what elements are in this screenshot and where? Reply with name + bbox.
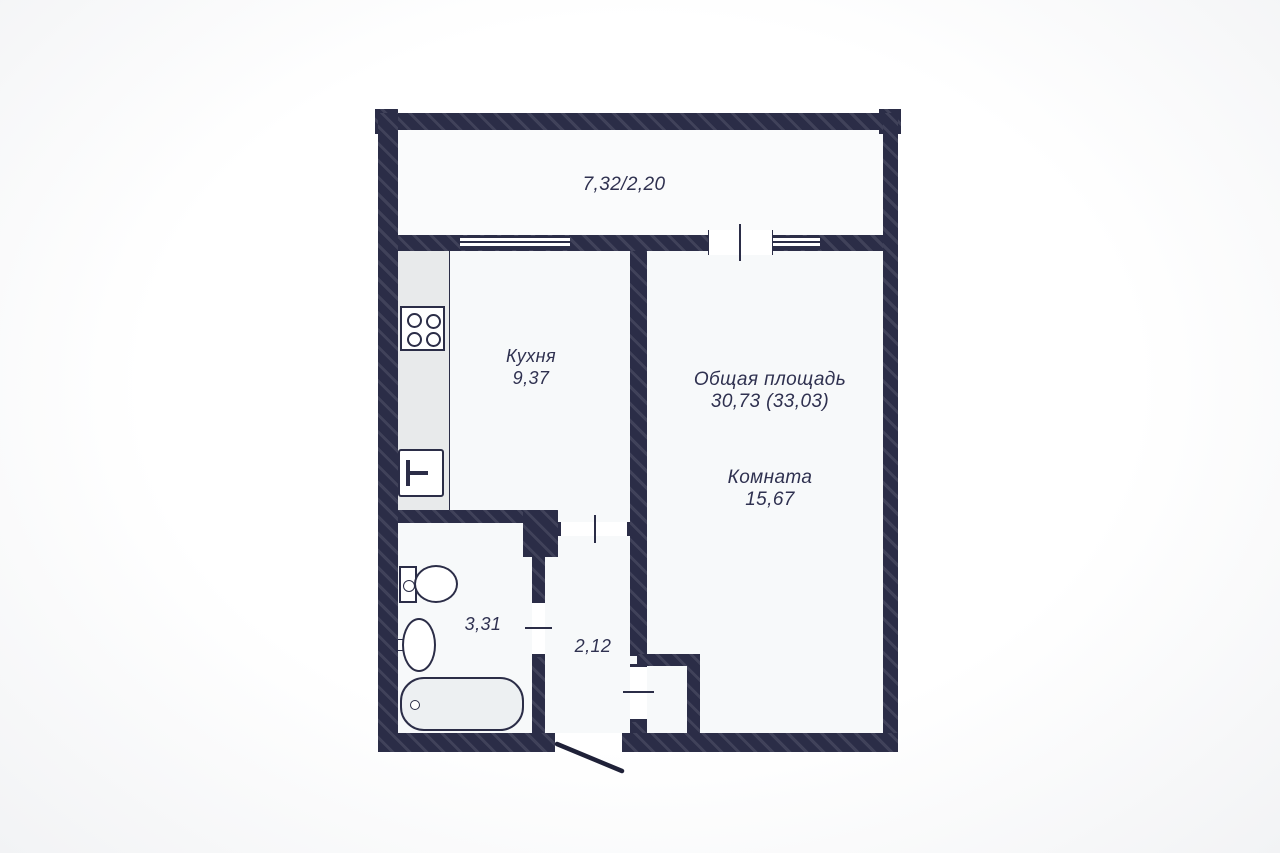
hallway-area-label: 2,12 <box>555 635 631 657</box>
hallway-area-text: 2,12 <box>575 636 612 656</box>
total-area-title-text: Общая площадь <box>655 369 885 391</box>
washbasin-icon <box>402 618 436 672</box>
kitchen-window-icon <box>460 236 570 250</box>
room-label: Комната 15,67 <box>655 467 885 511</box>
kitchen-doorway-tick <box>594 515 596 543</box>
kitchen-label: Кухня 9,37 <box>456 345 606 389</box>
right-outer-wall <box>883 113 898 752</box>
bathtub-icon <box>400 677 524 731</box>
room-doorway-icon <box>630 664 647 722</box>
balcony-area-label: 7,32/2,20 <box>544 174 704 196</box>
kitchen-sink-icon <box>398 449 444 497</box>
balcony-dims-text: 7,32/2,20 <box>583 174 666 195</box>
bottom-wall-right <box>622 733 898 752</box>
stove-icon <box>400 306 445 351</box>
room-doorway-tick <box>623 691 654 693</box>
room-area-text: 15,67 <box>655 489 885 511</box>
kitchen-name-text: Кухня <box>456 345 606 367</box>
balcony-door-tick <box>739 224 741 261</box>
room-window-icon <box>773 236 820 250</box>
floor-plan: 7,32/2,20 Кухня 9,37 Общая площадь 30,73… <box>0 0 1280 853</box>
bathroom-right-wall-upper <box>532 557 545 600</box>
kitchen-area-text: 9,37 <box>456 367 606 389</box>
total-area-value-text: 30,73 (33,03) <box>655 391 885 413</box>
room-name-text: Комната <box>655 467 885 489</box>
bathroom-area-text: 3,31 <box>465 614 502 634</box>
total-area-label: Общая площадь 30,73 (33,03) <box>655 369 885 413</box>
room-door-stub-wall <box>630 722 647 733</box>
bottom-wall-left <box>378 733 555 752</box>
bathroom-doorway-tick <box>525 627 552 629</box>
left-outer-wall <box>378 113 398 752</box>
bathroom-right-wall-lower <box>532 657 545 733</box>
bathroom-top-wall <box>398 510 523 523</box>
alcove-right-wall <box>687 654 700 733</box>
balcony-top-wall <box>378 113 898 130</box>
wall-pillar <box>523 510 558 557</box>
kitchen-room-divider-wall <box>630 251 647 656</box>
toilet-bowl-icon <box>414 565 458 603</box>
bathroom-area-label: 3,31 <box>445 613 521 635</box>
